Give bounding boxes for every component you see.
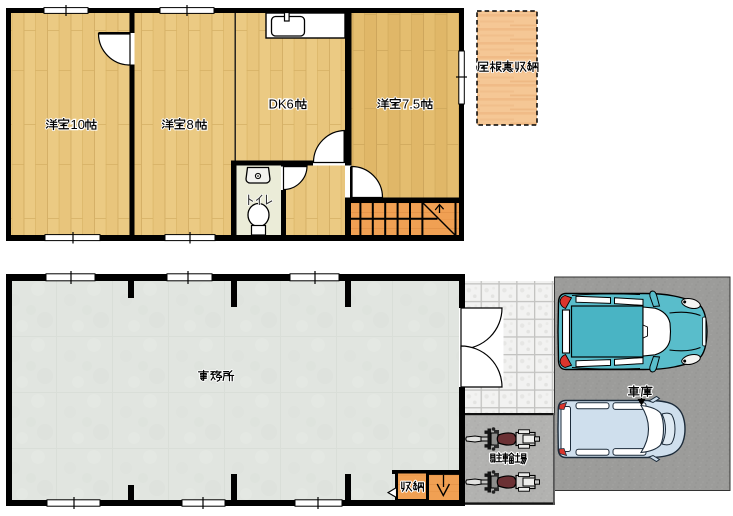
svg-text:DK6: DK6 [269,97,294,112]
svg-text:8: 8 [187,117,194,132]
svg-text:10: 10 [71,117,85,132]
svg-text:7.5: 7.5 [402,97,420,112]
